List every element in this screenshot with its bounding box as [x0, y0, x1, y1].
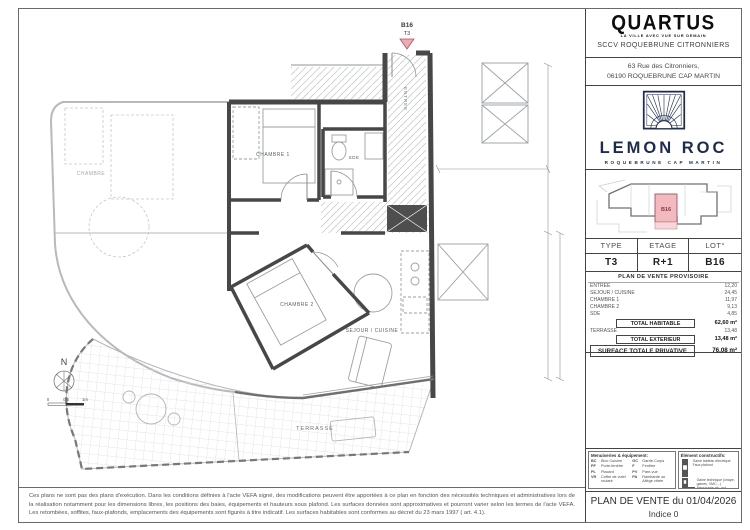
plan-footer: PLAN DE VENTE du 01/04/2026 Indice 0 — [586, 492, 741, 522]
north-label: N — [61, 357, 68, 367]
wall-section-icon — [681, 459, 691, 477]
legend-label: Coffre de volet roulant — [601, 475, 631, 484]
plan-title-date: PLAN DE VENTE du 01/04/2026 — [586, 496, 741, 507]
total-exterieur-label: TOTAL EXTERIEUR — [616, 335, 695, 344]
neighbor-room-label: CHAMBRE — [77, 171, 106, 177]
legend-section: Menuiseries & équipement: BC Bloc Cuisin… — [586, 448, 741, 492]
spacer — [586, 353, 741, 448]
unit-type: T3 — [586, 254, 638, 271]
surface-row-label: CHAMBRE 2 — [590, 304, 619, 311]
lot-marker: B16 T3 — [400, 22, 414, 49]
terrasse-label: TERRASSE — [590, 328, 617, 335]
surface-table-title: PLAN DE VENTE PROVISOIRE — [588, 272, 739, 283]
chambre1-label: CHAMBRE 1 — [256, 152, 290, 158]
legend-element-label: Gaine technique (chape, gaines, VMC…) — [697, 478, 735, 486]
unit-etage: R+1 — [638, 254, 690, 271]
project-location: ROQUEBRUNE CAP MARTIN — [586, 160, 741, 165]
legend-label: Fenêtre — [642, 464, 672, 468]
sejour-label: SEJOUR / CUISINE — [346, 328, 399, 334]
chambre2-label: CHAMBRE 2 — [280, 302, 314, 308]
terrasse-value: 13,48 — [724, 328, 737, 335]
keyplan-drawing: B16 — [589, 172, 739, 236]
legend-label: Rambarde ou Allège vitrée — [642, 475, 672, 484]
legend-abbr: GC — [632, 459, 641, 463]
legend-abbr: PA — [632, 475, 641, 484]
duct-block — [387, 205, 427, 232]
surface-row-value: 12,20 — [724, 283, 737, 290]
legend-abbr: PF — [591, 464, 600, 468]
legend-menuiseries-title: Menuiseries & équipement: — [591, 453, 673, 458]
keyplan-unit-label: B16 — [660, 207, 670, 213]
unit-id-table: TYPE ETAGE LOT° T3 R+1 B16 — [586, 239, 741, 272]
surface-row: SEJOUR / CUISINE 24,45 — [588, 290, 739, 297]
legend-label: Bloc Cuisine — [601, 459, 631, 463]
art-deco-fan-icon — [637, 89, 691, 133]
surface-row: SDE 4,85 — [588, 311, 739, 318]
lot-marker-type: T3 — [404, 31, 410, 37]
surface-row-value: 24,45 — [724, 290, 737, 297]
address-line2: 06190 ROQUEBRUNE CAP MARTIN — [586, 72, 741, 82]
surface-row: CHAMBRE 1 11,97 — [588, 297, 739, 304]
legend-abbr: PL — [591, 470, 600, 474]
scale-bar: 0 0,5 1m — [47, 397, 89, 406]
legal-disclaimer: Ces plans ne sont pas des plans d'exécut… — [19, 487, 585, 522]
surface-row-value: 4,85 — [727, 311, 737, 318]
terrace: TERRASSE — [66, 339, 434, 469]
unit-table-values: T3 R+1 B16 — [586, 254, 741, 271]
legend-elements: Élément constructifs: Gaine tableau élec… — [678, 451, 739, 489]
plan-sheet: CHAMBRE TERRASSE — [18, 8, 742, 523]
terrasse-row: TERRASSE 13,48 — [588, 328, 739, 335]
legend-element-label: Menuiserie alu. ext. — [697, 486, 727, 489]
total-habitable-value: 62,60 m² — [695, 319, 739, 328]
col-etage: ETAGE — [638, 239, 690, 253]
scale-zero: 0 — [47, 397, 50, 402]
legend-elements-title: Élément constructifs: — [681, 453, 736, 458]
total-exterieur-row: TOTAL EXTERIEUR 13,48 m² — [588, 335, 739, 344]
total-exterieur-value: 13,48 m² — [695, 335, 739, 344]
title-block: QUARTUS LA VILLE AVEC VUE SUR DEMAIN SCC… — [585, 9, 741, 522]
surface-row-value: 9,13 — [727, 304, 737, 311]
legend-menuiseries: Menuiseries & équipement: BC Bloc Cuisin… — [588, 451, 676, 489]
surface-table: PLAN DE VENTE PROVISOIRE ENTREE 12,20 SE… — [586, 272, 741, 353]
project-name: LEMON ROC — [586, 139, 741, 158]
surface-row: CHAMBRE 2 9,13 — [588, 304, 739, 311]
legend-label: Garde-Corps — [642, 459, 672, 463]
entree-label: ENTREE — [403, 87, 408, 111]
legend-abbr: PV — [632, 470, 641, 474]
lot-marker-id: B16 — [401, 22, 413, 29]
legend-abbr: F — [632, 464, 641, 468]
plan-indice: Indice 0 — [586, 509, 741, 519]
developer-company: SCCV ROQUEBRUNE CITRONNIERS — [586, 42, 741, 49]
floor-plan: CHAMBRE TERRASSE — [19, 9, 585, 487]
legend-abbr: BC — [591, 459, 600, 463]
keyplan: B16 — [586, 170, 741, 239]
scale-one: 1m — [82, 397, 88, 402]
legend-label: Pare-vue — [642, 470, 672, 474]
surface-row-label: SDE — [590, 311, 600, 318]
surface-row-label: ENTREE — [590, 283, 610, 290]
floor-plan-drawing: CHAMBRE TERRASSE — [19, 9, 585, 487]
project-address: 63 Rue des Citronniers, 06190 ROQUEBRUNE… — [586, 58, 741, 86]
surface-row-label: CHAMBRE 1 — [590, 297, 619, 304]
surface-row: ENTREE 12,20 — [588, 283, 739, 290]
legend-element-label: Faux plafond — [693, 463, 713, 467]
legend-abbr: VR — [591, 475, 600, 484]
unit-lot: B16 — [689, 254, 741, 271]
legend-label: Porte-fenêtre — [601, 464, 631, 468]
unit-table-header: TYPE ETAGE LOT° — [586, 239, 741, 254]
developer-logo: QUARTUS — [586, 13, 741, 35]
project-logo-block: LEMON ROC ROQUEBRUNE CAP MARTIN — [586, 86, 741, 170]
developer-block: QUARTUS LA VILLE AVEC VUE SUR DEMAIN SCC… — [586, 9, 741, 58]
col-lot: LOT° — [689, 239, 741, 253]
col-type: TYPE — [586, 239, 638, 253]
surface-row-value: 11,97 — [725, 297, 737, 304]
total-habitable-row: TOTAL HABITABLE 62,60 m² — [588, 319, 739, 328]
entry-marker-triangle — [400, 39, 414, 49]
scale-half: 0,5 — [63, 397, 69, 402]
sde-label: SDE — [349, 155, 360, 160]
shafts — [438, 63, 528, 300]
address-line1: 63 Rue des Citronniers, — [586, 62, 741, 72]
terrace-label: TERRASSE — [296, 426, 334, 432]
surface-row-label: SEJOUR / CUISINE — [590, 290, 635, 297]
total-habitable-label: TOTAL HABITABLE — [616, 319, 695, 328]
legend-label: Placard — [601, 470, 631, 474]
wall-corner-icon — [681, 478, 695, 489]
